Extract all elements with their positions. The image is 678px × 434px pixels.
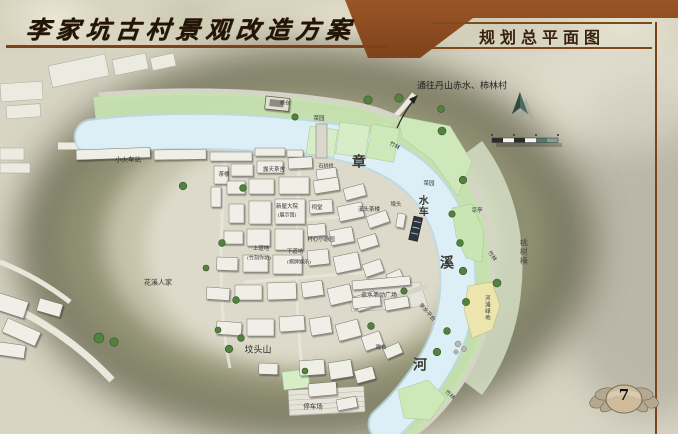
site-plan-map [0, 0, 678, 434]
granary-building [265, 96, 290, 111]
stone-bridge [316, 124, 327, 158]
page-number-badge: 7 [588, 377, 660, 423]
page-number: 7 [588, 386, 660, 404]
slide: 通往丹山赤水、柿林村粮仓菜园竹林小火车站露天茶舍石拱桥茶楼章菜园埠头溪头茶楼水车… [0, 0, 678, 434]
page-title: 李家坑古村景观改造方案 [24, 10, 358, 45]
title-rule [6, 45, 388, 48]
subtitle-strip: 规划总平面图 [432, 22, 652, 49]
subtitle: 规划总平面图 [479, 24, 605, 48]
right-border-line [655, 22, 657, 434]
